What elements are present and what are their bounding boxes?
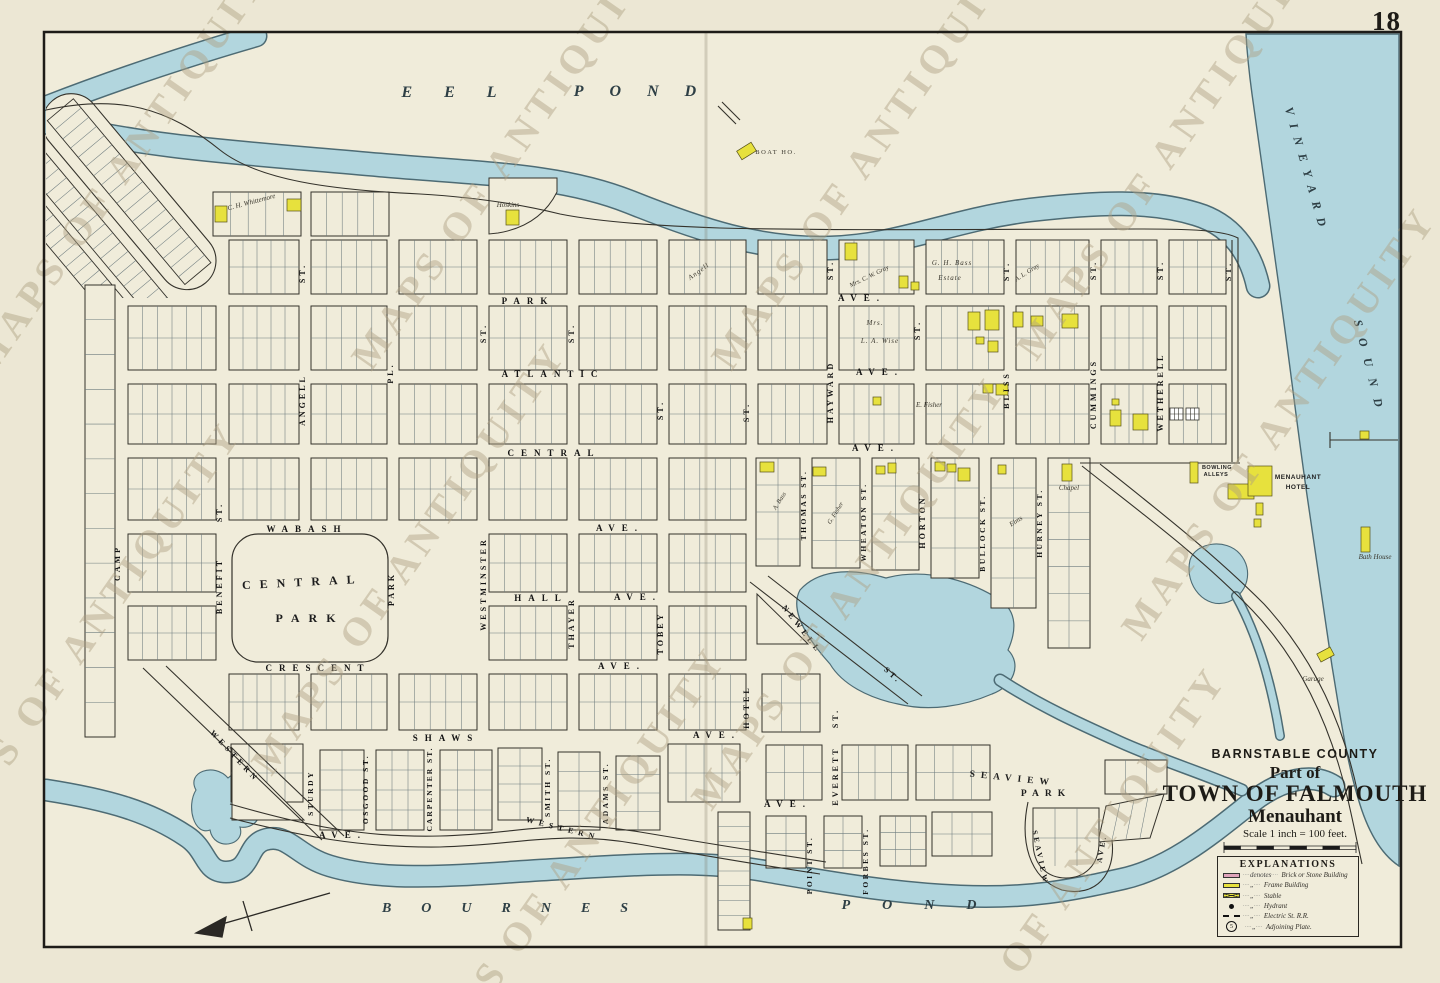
map-label-benefit: BENEFIT (215, 558, 224, 614)
map-label-park: PARK (502, 296, 555, 306)
legend-row-adjoining-plate: 5 „ Adjoining Plate. (1223, 921, 1353, 931)
map-label-pond: POND (573, 83, 722, 100)
map-label-park: PARK (275, 611, 344, 625)
adjoining-plate-icon: 5 (1226, 921, 1237, 932)
legend-row-electric: „ Electric St. R.R. (1223, 911, 1353, 921)
map-label-chapel: Chapel (1059, 484, 1079, 492)
map-label-ave: AVE. (319, 830, 367, 840)
frame-building (911, 282, 919, 290)
title-village: Menauhant (1150, 807, 1440, 828)
frame-building (1361, 527, 1370, 552)
map-label-e-fisher: E. Fisher (915, 401, 942, 409)
map-label-ave: AVE. (838, 293, 886, 303)
map-label-ave: AVE. (764, 799, 812, 809)
legend-row-stable: „ Stable (1223, 891, 1353, 901)
frame-building (888, 463, 896, 473)
frame-building (743, 918, 752, 929)
electric-rr-line-icon (1223, 915, 1240, 917)
map-label-thayer: THAYER (567, 597, 576, 649)
map-label-smith-st: SMITH ST. (543, 757, 552, 817)
legend-lead: „ (1243, 902, 1261, 910)
map-label-shaws: SHAWS (413, 733, 480, 743)
map-label-everett: EVERETT (831, 746, 840, 805)
map-label-pl: PL. (386, 362, 395, 383)
map-label-forbes-st: FORBES ST. (861, 827, 870, 894)
map-label-st: ST. (656, 400, 665, 420)
map-label-ave: AVE. (614, 592, 662, 602)
brick-swatch-icon (1223, 873, 1240, 878)
frame-building (1110, 410, 1121, 426)
map-label-mrs: Mrs. (865, 319, 883, 327)
legend-lead: „ (1243, 892, 1261, 900)
frame-building (1360, 431, 1369, 439)
map-label-st: ST. (831, 708, 840, 728)
map-label-sturdy: STURDY (306, 770, 315, 816)
map-label-pond: POND (842, 898, 1009, 913)
legend-text: Stable (1264, 892, 1282, 900)
frame-building (876, 466, 885, 474)
legend-lead: „ (1245, 923, 1263, 931)
legend-text: Hydrant (1264, 902, 1287, 910)
map-label-bath-house: Bath House (1359, 553, 1392, 561)
title-scale-note: Scale 1 inch = 100 feet. (1150, 829, 1440, 841)
legend-text: Adjoining Plate. (1266, 923, 1312, 931)
legend-text: Frame Building (1264, 881, 1309, 889)
legend-lead: „ (1243, 912, 1261, 920)
map-label-hayward: HAYWARD (826, 361, 835, 424)
legend-lead: „ (1243, 881, 1261, 889)
legend-text: Electric St. R.R. (1264, 912, 1309, 920)
map-label-ave: AVE. (852, 443, 900, 453)
block (311, 192, 389, 236)
map-label-thomas-st: THOMAS ST. (799, 470, 808, 541)
map-label-hotel: HOTEL (1286, 484, 1311, 491)
frame-building (215, 206, 227, 222)
stable-swatch-icon (1223, 893, 1240, 898)
map-label-st: ST. (1156, 260, 1165, 280)
frame-building (968, 312, 980, 330)
legend-box: EXPLANATIONS denotes Brick or Stone Buil… (1217, 856, 1359, 937)
map-label-park: PARK (1021, 789, 1071, 799)
frame-building-swatch-icon (1223, 883, 1240, 888)
hydrant-dot-icon (1229, 904, 1234, 909)
frame-building (976, 337, 984, 344)
frame-building (1254, 519, 1261, 527)
map-label-g-h-bass: G. H. Bass (932, 259, 972, 267)
map-label-ave: AVE. (856, 367, 904, 377)
map-label-point-st: POINT ST. (805, 836, 814, 894)
map-label-st: ST. (742, 402, 751, 422)
frame-building (760, 462, 774, 472)
frame-building (506, 210, 519, 225)
map-label-st: ST. (479, 323, 488, 343)
title-county: BARNSTABLE COUNTY (1150, 748, 1440, 762)
map-label-angell: ANGELL (298, 374, 307, 426)
frame-building (998, 465, 1006, 474)
title-town: TOWN OF FALMOUTH (1150, 782, 1440, 807)
frame-building (988, 341, 998, 352)
map-label-menauhant: MENAUHANT (1275, 474, 1321, 481)
map-label-boat-ho: BOAT HO. (755, 149, 797, 156)
map-label-bullock-st: BULLOCK ST. (978, 494, 987, 571)
map-label-ave: AVE. (596, 523, 644, 533)
map-label-carpenter-st: CARPENTER ST. (425, 746, 434, 831)
frame-building (813, 467, 826, 476)
frame-building (985, 310, 999, 330)
map-label-cummings: CUMMINGS (1089, 359, 1098, 429)
map-label-st: ST. (298, 263, 307, 283)
map-label-westminster: WESTMINSTER (479, 537, 488, 630)
page-number: 18 (1372, 6, 1401, 37)
map-label-ave: AVE. (598, 661, 646, 671)
map-label-st: ST. (826, 260, 835, 280)
frame-building (1256, 503, 1263, 515)
block (880, 816, 926, 866)
map-label-st: ST. (1002, 261, 1011, 281)
title-part-of: Part of (1150, 764, 1440, 782)
frame-building (1190, 462, 1198, 483)
map-label-wabash: WABASH (266, 524, 347, 534)
map-label-wetherell: WETHERELL (1156, 352, 1165, 431)
block (85, 285, 115, 737)
frame-building (287, 199, 301, 211)
frame-building (1112, 399, 1119, 405)
frame-building (1062, 464, 1072, 481)
frame-building (845, 243, 857, 260)
map-label-tobey: TOBEY (656, 612, 665, 655)
legend-text: Brick or Stone Building (1281, 871, 1347, 879)
legend-row-brick: denotes Brick or Stone Building (1223, 870, 1353, 880)
map-label-hall: HALL (514, 593, 568, 603)
map-label-st: ST. (913, 320, 922, 340)
map-label-eel: EEL (400, 84, 528, 101)
legend-lead: denotes (1243, 871, 1278, 879)
legend-row-frame: „ Frame Building (1223, 880, 1353, 890)
title-block: BARNSTABLE COUNTY Part of TOWN OF FALMOU… (1150, 748, 1440, 841)
map-label-st: ST. (567, 323, 576, 343)
atlas-sheet: EELPONDVINEYARDSOUNDBOURNESPONDCENTRALPA… (0, 0, 1440, 983)
legend-row-hydrant: „ Hydrant (1223, 901, 1353, 911)
frame-building (1133, 414, 1148, 430)
map-label-osgood-st: OSGOOD ST. (361, 754, 370, 824)
legend-title: EXPLANATIONS (1223, 859, 1353, 870)
map-label-central: CENTRAL (507, 448, 600, 458)
frame-building (899, 276, 908, 288)
map-label-hurney-st: HURNEY ST. (1035, 488, 1044, 558)
map-label-l-a-wise: L. A. Wise (860, 337, 899, 345)
frame-building (873, 397, 881, 405)
map-label-st: ST. (215, 502, 224, 522)
map-label-estate: Estate (937, 274, 962, 282)
map-label-garage: Garage (1302, 675, 1323, 683)
map-label-st: ST. (1224, 261, 1233, 281)
